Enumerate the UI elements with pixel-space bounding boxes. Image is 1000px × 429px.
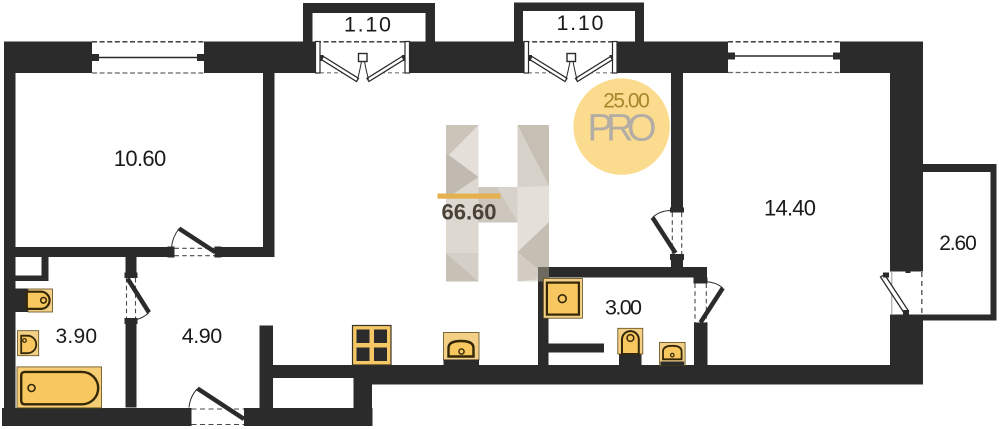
svg-text:66.60: 66.60 bbox=[442, 200, 497, 225]
svg-text:2.60: 2.60 bbox=[939, 232, 977, 255]
svg-text:3.90: 3.90 bbox=[56, 325, 98, 348]
svg-text:PRO: PRO bbox=[588, 108, 657, 150]
svg-text:3.00: 3.00 bbox=[605, 296, 642, 320]
svg-text:14.40: 14.40 bbox=[764, 196, 816, 221]
svg-text:1.10: 1.10 bbox=[557, 11, 604, 35]
svg-text:1.10: 1.10 bbox=[344, 13, 391, 37]
svg-text:10.60: 10.60 bbox=[114, 146, 167, 171]
svg-text:4.90: 4.90 bbox=[182, 324, 223, 348]
